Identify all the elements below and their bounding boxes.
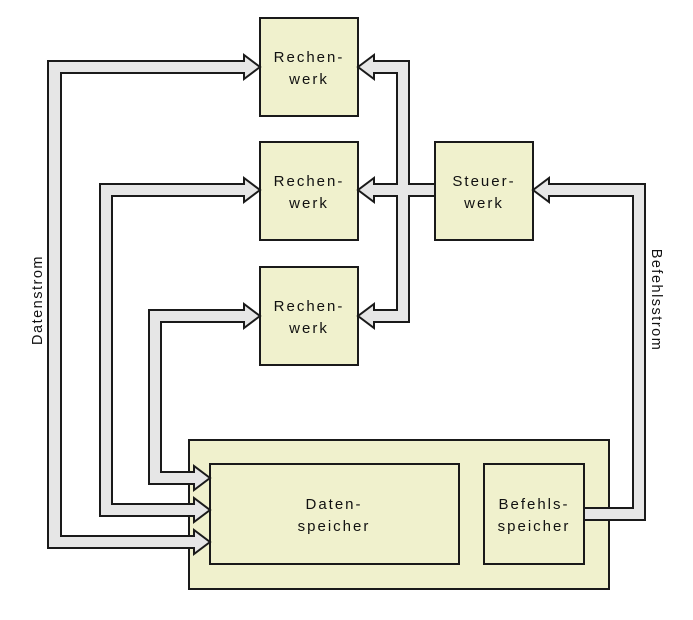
befehlsspeicher-label-line2: speicher <box>498 518 571 535</box>
rechenwerk-1-box <box>260 18 358 116</box>
rechenwerk-1-label-line1: Rechen- <box>274 49 345 66</box>
rechenwerk-2-box <box>260 142 358 240</box>
datenstrom-label: Datenstrom <box>30 255 46 345</box>
diagram-canvas: Rechen- werk Rechen- werk Rechen- werk S… <box>0 0 693 620</box>
rechenwerk-2-label-line1: Rechen- <box>274 173 345 190</box>
rechenwerk-3-label-line2: werk <box>288 320 329 337</box>
befehlsspeicher-label-line1: Befehls- <box>498 496 569 513</box>
befehlsspeicher-box <box>484 464 584 564</box>
rechenwerk-1-label-line2: werk <box>288 71 329 88</box>
simd-architecture-diagram: Rechen- werk Rechen- werk Rechen- werk S… <box>0 0 693 620</box>
steuerwerk-label-line2: werk <box>463 195 504 212</box>
datenspeicher-box <box>210 464 459 564</box>
steuerwerk-box <box>435 142 533 240</box>
instruction-distribution-arrow <box>358 55 435 328</box>
rechenwerk-2-label-line2: werk <box>288 195 329 212</box>
steuerwerk-label-line1: Steuer- <box>452 173 515 190</box>
datenspeicher-label-line1: Daten- <box>305 496 362 513</box>
rechenwerk-3-box <box>260 267 358 365</box>
datenspeicher-label-line2: speicher <box>298 518 371 535</box>
befehlsstrom-label: Befehlsstrom <box>648 249 664 352</box>
rechenwerk-3-label-line1: Rechen- <box>274 298 345 315</box>
